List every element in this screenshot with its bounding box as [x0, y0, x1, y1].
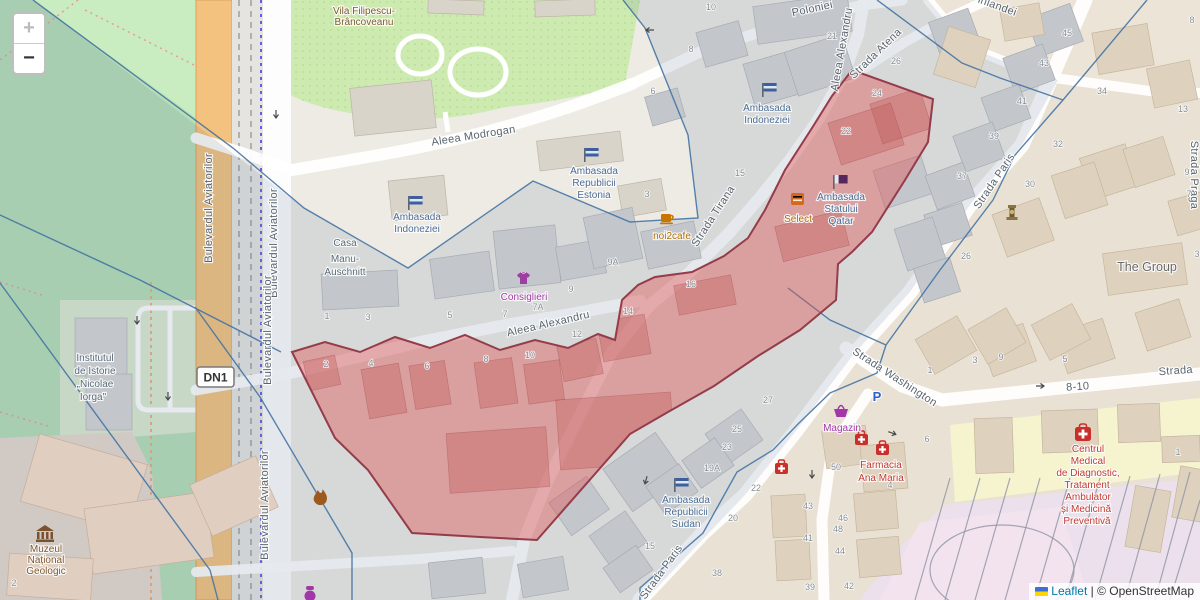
zoom-control: + − [12, 12, 46, 75]
house-number-label: 3 [1194, 249, 1199, 259]
house-number-label: 6 [650, 86, 655, 96]
house-number-label: 50 [831, 462, 841, 472]
poi-label: Qatar [828, 216, 854, 227]
house-number-label: 21 [827, 31, 837, 41]
house-number-label: 9 [1184, 167, 1189, 177]
house-number-label: 15 [645, 541, 655, 551]
house-number-label: 39 [805, 582, 815, 592]
poi-label: Estonia [577, 190, 611, 201]
house-number-label: 5 [447, 310, 452, 320]
shop-icon-partial [305, 586, 316, 600]
house-number-label: 12 [572, 329, 582, 339]
poi-label: Indoneziei [744, 115, 790, 126]
house-number-label: 22 [841, 126, 851, 136]
house-number-label: 9 [998, 352, 1003, 362]
house-number-label: 43 [803, 501, 813, 511]
house-number-label: 8 [483, 354, 488, 364]
house-number-label: 3 [644, 189, 649, 199]
street-name-label: Strada [1158, 364, 1194, 378]
street-name-label: Bulevardul Aviatorilor [203, 153, 215, 263]
house-number-label: 16 [686, 279, 696, 289]
restaurant-icon [791, 193, 804, 205]
house-number-label: 7 [502, 309, 507, 319]
house-number-label: 3 [972, 355, 977, 365]
house-number-label: 26 [961, 251, 971, 261]
house-number-label: 41 [1017, 96, 1027, 106]
poi-label: Ambulator [1065, 492, 1111, 503]
house-number-label: 1 [927, 365, 932, 375]
house-number-label: 42 [844, 581, 854, 591]
poi-label: Sudan [672, 519, 701, 530]
house-number-label: 9A [607, 257, 618, 267]
house-number-label: 43 [1039, 58, 1049, 68]
poi-label: Preventivă [1063, 516, 1111, 527]
poi-label: Republicii [572, 178, 615, 189]
poi-label: Institutul [76, 353, 113, 364]
poi-label: Brâncoveanu [335, 17, 394, 28]
poi-label: Indoneziei [394, 224, 440, 235]
poi-label: noi2cafe [653, 231, 691, 242]
poi-label: Iorga" [80, 392, 107, 403]
house-number-label: 30 [1025, 179, 1035, 189]
house-number-label: 10 [706, 2, 716, 12]
poi-label: Medical [1071, 456, 1105, 467]
house-number-label: 2 [323, 359, 328, 369]
house-number-label: 24 [872, 88, 882, 98]
house-number-label: 39 [989, 131, 999, 141]
osm-copyright[interactable]: © OpenStreetMap [1097, 584, 1194, 598]
house-number-label: 7A [532, 302, 543, 312]
poi-label: Magazin [823, 423, 861, 434]
poi-label: The Group [1117, 260, 1177, 274]
house-number-label: 7 [1186, 189, 1191, 199]
leaflet-link[interactable]: Leaflet [1051, 584, 1087, 598]
attribution-divider: | [1091, 584, 1094, 598]
house-number-label: 1 [324, 311, 329, 321]
house-number-label: 4 [368, 358, 373, 368]
poi-label: Muzeul [30, 544, 62, 555]
poi-label: Tratament [1064, 480, 1109, 491]
house-number-label: 32 [1053, 139, 1063, 149]
house-number-label: 4 [887, 480, 892, 490]
poi-label: de Istorie [74, 366, 116, 377]
house-number-label: 37 [957, 171, 967, 181]
house-number-label: 8 [1189, 15, 1194, 25]
house-number-label: 44 [835, 546, 845, 556]
poi-label: Casa [333, 238, 357, 249]
house-number-label: 1 [1175, 447, 1180, 457]
poi-label: Manu- [331, 254, 359, 265]
house-number-label: 3 [365, 312, 370, 322]
parking-icon: P [873, 389, 882, 404]
poi-label: Ambasada [393, 212, 441, 223]
poi-label: Vila Filipescu- [333, 6, 395, 17]
house-number-label: 2 [11, 578, 16, 588]
poi-label: Auschnitt [324, 267, 365, 278]
street-name-label: 8-10 [1066, 380, 1090, 394]
house-number-label: 20 [728, 513, 738, 523]
poi-label: „Nicolae [77, 379, 114, 390]
zoom-in-button[interactable]: + [14, 14, 44, 44]
house-number-label: 26 [891, 56, 901, 66]
house-number-label: 25 [732, 424, 742, 434]
house-number-label: 27 [763, 395, 773, 405]
house-number-label: 14 [623, 306, 633, 316]
house-number-label: 48 [833, 524, 843, 534]
poi-label: Ambasada [570, 166, 618, 177]
house-number-label: 15 [735, 168, 745, 178]
poi-label: Select [784, 214, 812, 225]
poi-label: Ana Maria [858, 473, 904, 484]
poi-label: Ambasada [743, 103, 791, 114]
poi-label: Farmacia [860, 460, 902, 471]
house-number-label: 6 [924, 434, 929, 444]
poi-label: Centrul [1072, 444, 1104, 455]
attribution-bar: Leaflet | © OpenStreetMap [1029, 583, 1200, 600]
street-name-label: Strada Praga [1188, 141, 1200, 210]
poi-label: Ambasada [662, 495, 710, 506]
house-number-label: 41 [803, 533, 813, 543]
house-number-label: 34 [1097, 86, 1107, 96]
poi-label: de Diagnostic, [1056, 468, 1119, 479]
house-number-label: 38 [712, 568, 722, 578]
house-number-label: 46 [838, 513, 848, 523]
coffee-cup-icon [660, 214, 673, 224]
house-number-label: 8 [688, 44, 693, 54]
street-name-label: Bulevardul Aviatorilor [259, 450, 271, 560]
house-number-label: 23 [722, 442, 732, 452]
house-number-label: 19A [704, 463, 720, 473]
house-number-label: 45 [1062, 28, 1072, 38]
house-number-label: 5 [1062, 354, 1067, 364]
svg-text:DN1: DN1 [203, 371, 227, 385]
poi-label: Național [28, 555, 65, 566]
house-number-label: 13 [1178, 104, 1188, 114]
poi-label: Geologic [26, 566, 65, 577]
map-canvas[interactable]: Aleea ModroganPolonieiAleea AlexandruStr… [0, 0, 1200, 600]
poi-label: Republicii [664, 507, 707, 518]
poi-label: Ambasada [817, 192, 865, 203]
ukraine-flag-icon [1035, 587, 1048, 596]
zoom-out-button[interactable]: − [14, 44, 44, 73]
house-number-label: 9 [568, 284, 573, 294]
street-name-label: Bulevardul Aviatorilor [262, 275, 274, 385]
map-viewport[interactable]: Aleea ModroganPolonieiAleea AlexandruStr… [0, 0, 1200, 600]
house-number-label: 22 [751, 483, 761, 493]
house-number-label: 6 [424, 361, 429, 371]
poi-label: Statului [824, 204, 857, 215]
road-shield-dn1: DN1 [197, 367, 234, 387]
poi-label: și Medicină [1061, 504, 1111, 515]
house-number-label: 10 [525, 350, 535, 360]
